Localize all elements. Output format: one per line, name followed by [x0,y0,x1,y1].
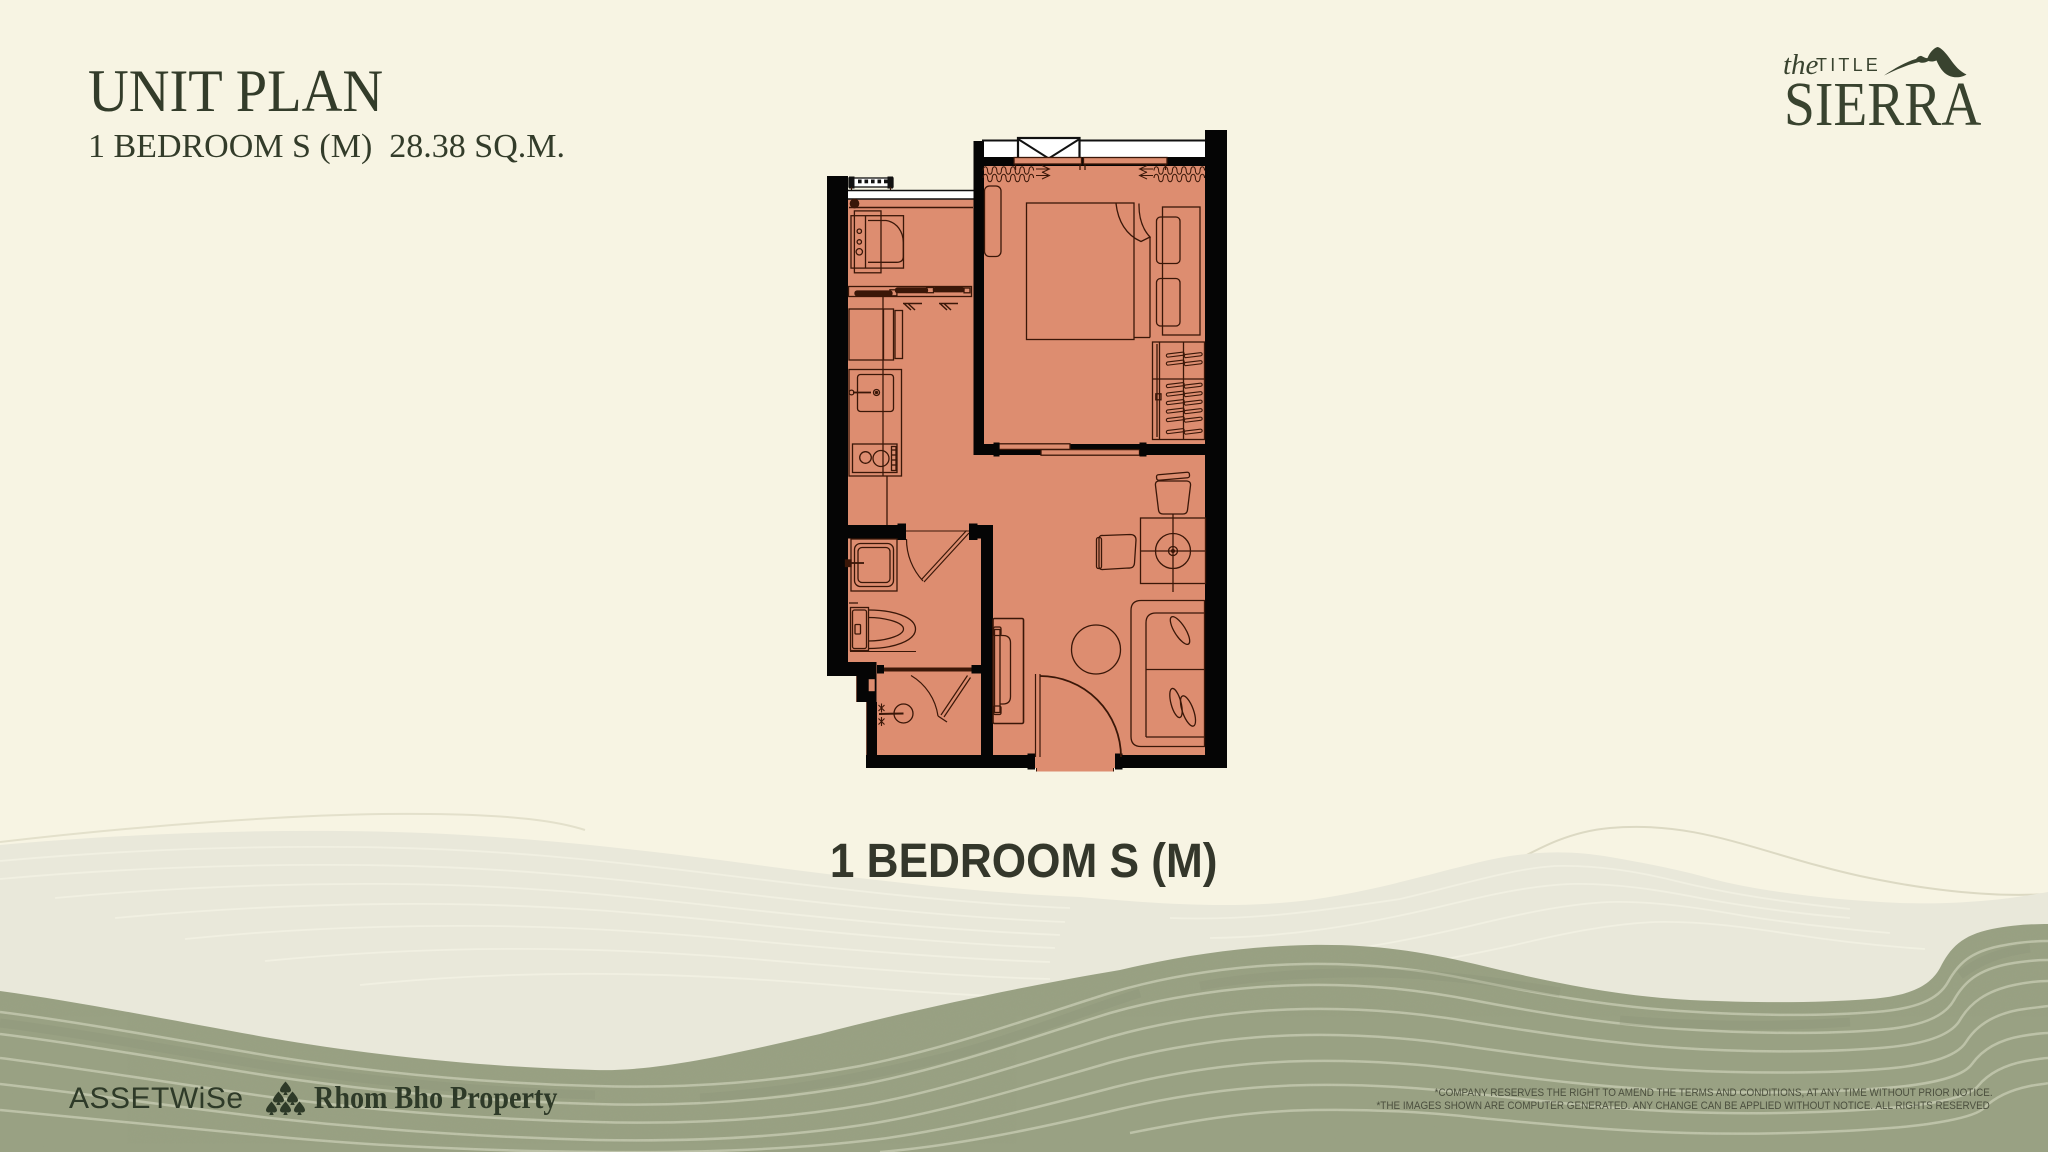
svg-text:Rhom Bho Property: Rhom Bho Property [314,1079,557,1115]
svg-text:SIERRA: SIERRA [1784,70,1982,138]
